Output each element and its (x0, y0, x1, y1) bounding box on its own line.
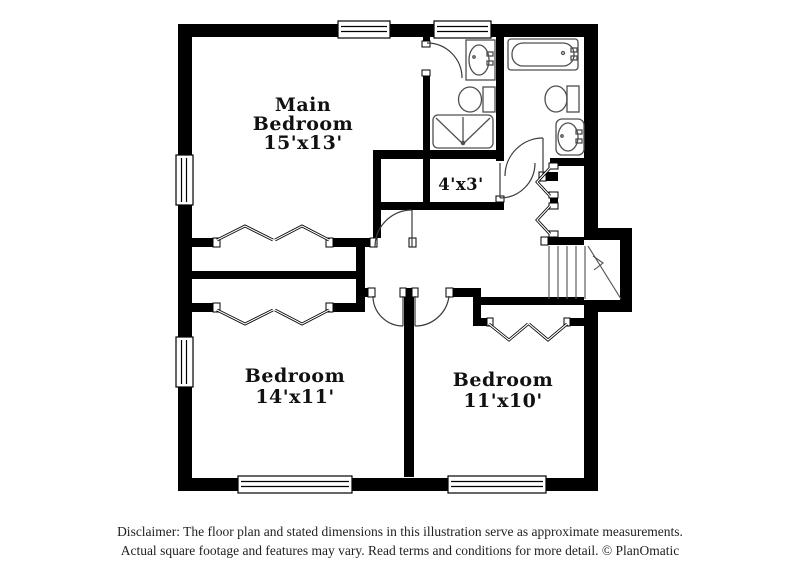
wall-segment (404, 288, 414, 477)
wall-segment (584, 300, 632, 312)
disclaimer-line1: Disclaimer: The floor plan and stated di… (117, 524, 683, 539)
wall-segment (584, 24, 598, 240)
door-jamb (422, 41, 430, 47)
window (238, 476, 352, 493)
wall-segment (545, 237, 584, 245)
window (176, 337, 193, 387)
window-frame (176, 337, 193, 387)
wall-segment (373, 150, 497, 159)
wall-segment (423, 73, 430, 210)
window (176, 155, 193, 205)
door-jamb (541, 237, 548, 245)
window (434, 21, 491, 38)
wall-segment (373, 150, 381, 238)
disclaimer-line2: Actual square footage and features may v… (121, 543, 680, 558)
door-jamb (368, 288, 375, 297)
bedroom-right-dims: 11'x10' (463, 390, 542, 412)
door-jamb (549, 231, 558, 237)
window-frame (238, 476, 352, 493)
door-jamb (549, 203, 558, 209)
wall-segment (473, 288, 481, 326)
door-jamb (549, 163, 558, 169)
window-frame (434, 21, 491, 38)
door-jamb (400, 288, 406, 297)
wall-segment (496, 37, 504, 161)
wall-segment (481, 297, 584, 305)
wall-segment (192, 303, 216, 312)
wall-segment (192, 271, 358, 279)
floor-plan-canvas: Main Bedroom 15'x13' 4'x3' Bedroom 14'x1… (0, 0, 800, 582)
wall-segment (192, 238, 216, 247)
wall-segment (356, 238, 365, 312)
wall-segment (620, 228, 632, 312)
wall-segment (373, 202, 504, 210)
wall-segment (178, 24, 192, 491)
main-bedroom-dims: 15'x13' (263, 132, 342, 154)
window-frame (176, 155, 193, 205)
door-jamb (412, 288, 418, 297)
bedroom-left-label: Bedroom (245, 365, 345, 387)
window (338, 21, 390, 38)
bedroom-left-dims: 14'x11' (255, 386, 334, 408)
door-jamb (446, 288, 453, 297)
closet-dims: 4'x3' (438, 175, 483, 194)
window-frame (448, 476, 546, 493)
window (448, 476, 546, 493)
door-jamb (422, 70, 430, 76)
window-frame (338, 21, 390, 38)
bedroom-right-label: Bedroom (453, 369, 553, 391)
wall-segment (584, 300, 598, 491)
